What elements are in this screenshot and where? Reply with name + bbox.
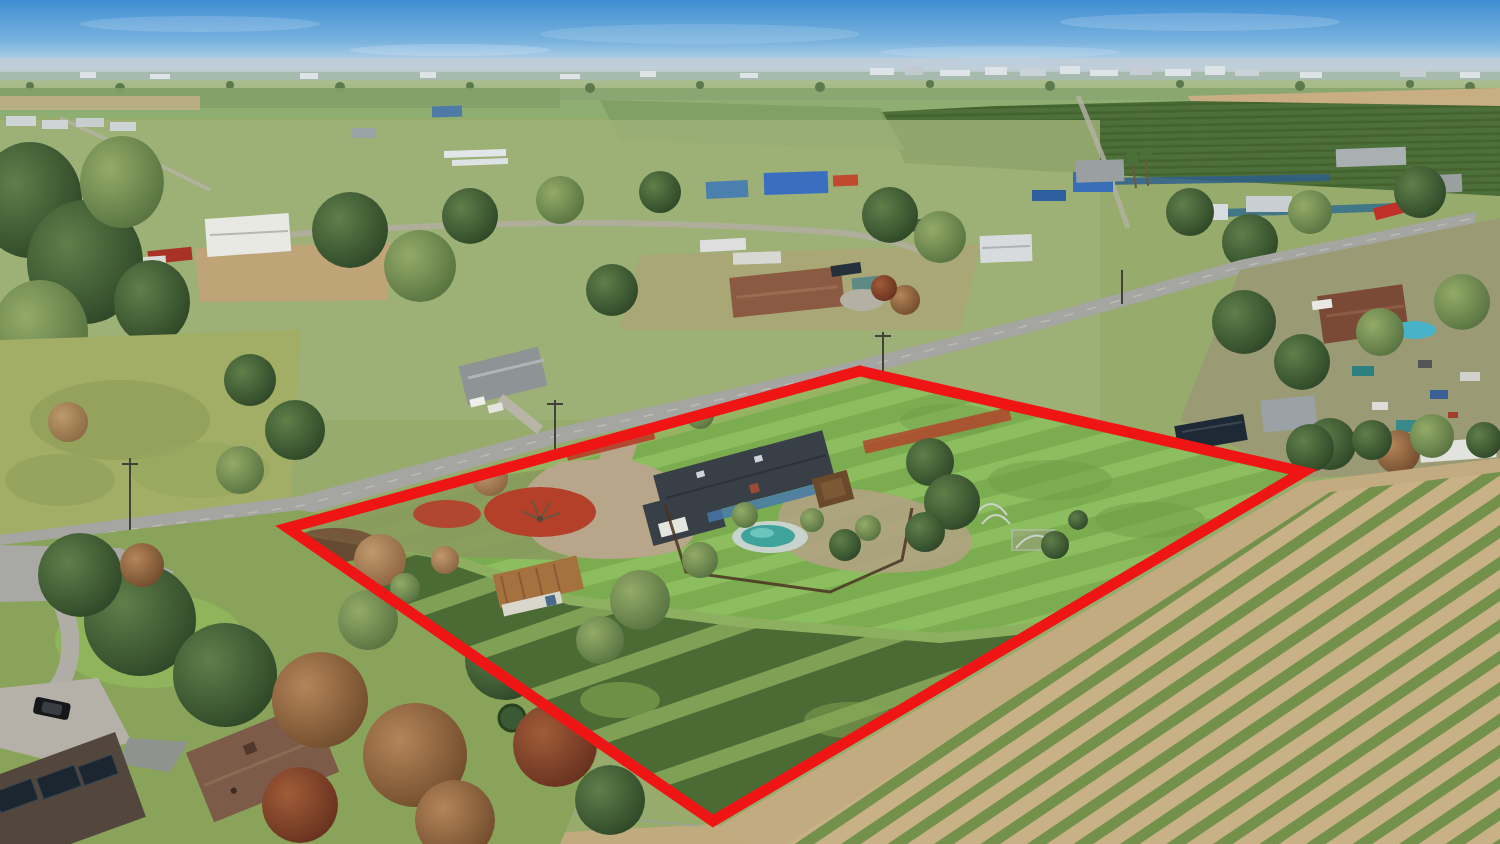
blue-roof-house — [764, 171, 829, 195]
blue-house-small — [706, 180, 749, 199]
aerial-photo: Aerial view of a rural residential parce… — [0, 0, 1500, 844]
